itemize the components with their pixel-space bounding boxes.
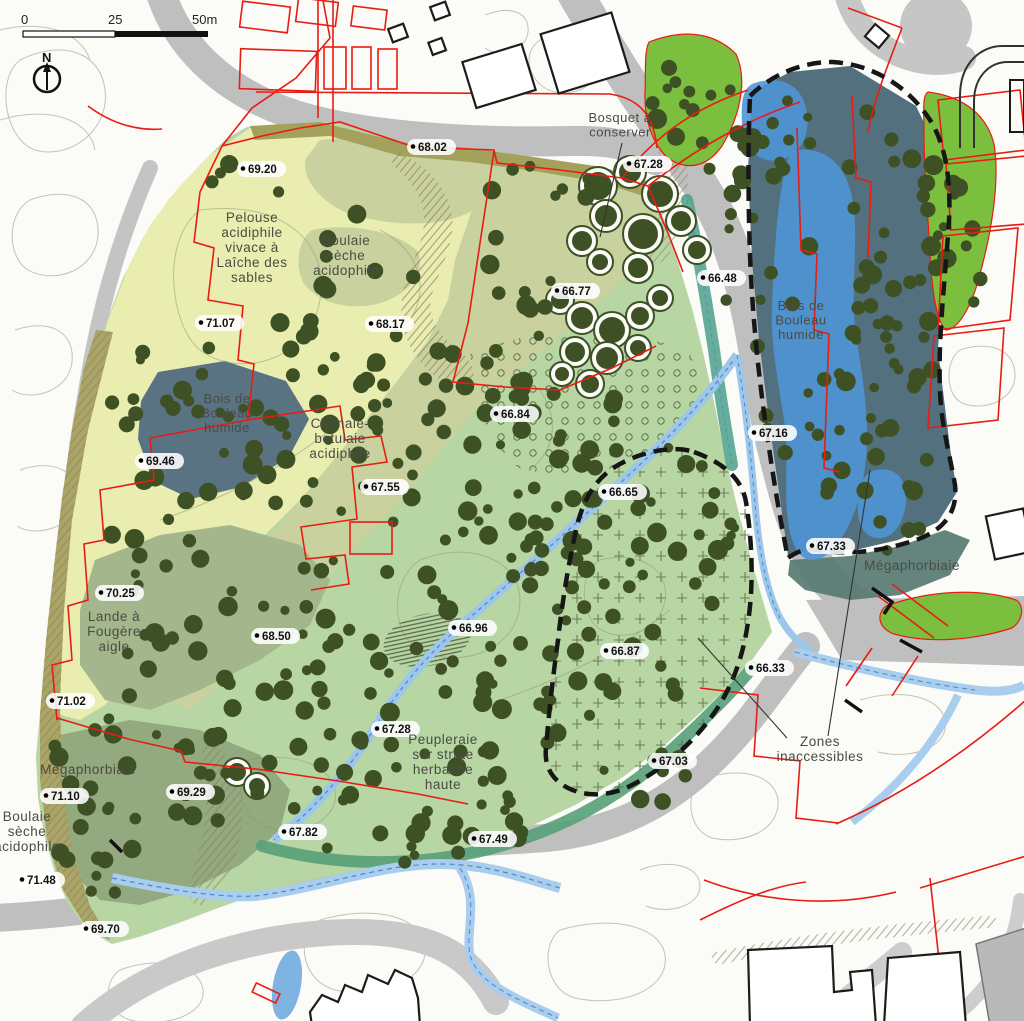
tree-dot bbox=[481, 741, 499, 759]
tree-dot bbox=[152, 730, 161, 739]
tree-dot bbox=[694, 529, 705, 540]
tree-dot bbox=[912, 522, 926, 536]
tree-dot bbox=[313, 276, 333, 296]
preserved-tree bbox=[591, 342, 623, 374]
tree-dot bbox=[109, 886, 121, 898]
tree-dot bbox=[869, 383, 879, 393]
tree-dot bbox=[183, 396, 194, 407]
tree-dot bbox=[427, 585, 441, 599]
tree-dot bbox=[282, 431, 291, 440]
tree-dot bbox=[439, 685, 453, 699]
elevation-value: 68.02 bbox=[418, 142, 447, 154]
tree-dot bbox=[380, 565, 394, 579]
tree-dot bbox=[365, 770, 382, 787]
elevation-label: 68.50 bbox=[251, 628, 300, 644]
tree-dot bbox=[262, 755, 278, 771]
tree-dot bbox=[483, 504, 493, 514]
tree-dot bbox=[296, 701, 314, 719]
tree-dot bbox=[136, 355, 145, 364]
tree-dot bbox=[439, 379, 453, 393]
tree-dot bbox=[238, 491, 248, 501]
tree-dot bbox=[356, 374, 369, 387]
map-canvas: 69.2068.0267.2866.7766.4871.0768.1766.84… bbox=[0, 0, 1024, 1021]
elevation-label: 69.29 bbox=[166, 784, 215, 800]
tree-dot bbox=[131, 569, 140, 578]
elevation-label: 67.55 bbox=[360, 479, 409, 495]
tree-dot bbox=[670, 76, 682, 88]
tree-dot bbox=[724, 518, 736, 530]
tree-dot bbox=[288, 802, 301, 815]
tree-dot bbox=[540, 517, 554, 531]
tree-dot bbox=[302, 665, 312, 675]
tree-dot bbox=[280, 606, 289, 615]
tree-dot bbox=[91, 851, 105, 865]
tree-dot bbox=[465, 479, 482, 496]
tree-dot bbox=[599, 766, 608, 775]
preserved-tree bbox=[576, 370, 604, 398]
tree-dot bbox=[363, 634, 380, 651]
tree-dot bbox=[430, 342, 447, 359]
tree-dot bbox=[308, 477, 319, 488]
tree-dot bbox=[557, 183, 568, 194]
tree-dot bbox=[382, 398, 392, 408]
elevation-value: 69.70 bbox=[91, 924, 120, 936]
tree-dot bbox=[567, 643, 584, 660]
tree-dot bbox=[853, 277, 870, 294]
tree-dot bbox=[256, 683, 274, 701]
elevation-value: 71.07 bbox=[206, 318, 235, 330]
tree-dot bbox=[166, 631, 179, 644]
tree-dot bbox=[127, 393, 139, 405]
elevation-label: 67.49 bbox=[468, 831, 517, 847]
tree-dot bbox=[608, 416, 620, 428]
tree-dot bbox=[102, 804, 114, 816]
tree-dot bbox=[565, 490, 582, 507]
tree-dot bbox=[502, 790, 513, 801]
tree-dot bbox=[419, 372, 432, 385]
tree-dot bbox=[314, 757, 329, 772]
tree-dot bbox=[103, 526, 121, 544]
tree-dot bbox=[874, 251, 887, 264]
tree-dot bbox=[492, 699, 512, 719]
tree-dot bbox=[282, 341, 299, 358]
tree-dot bbox=[194, 766, 208, 780]
tree-dot bbox=[119, 416, 135, 432]
tree-dot bbox=[923, 155, 943, 175]
tree-dot bbox=[702, 502, 719, 519]
tree-dot bbox=[476, 671, 494, 689]
tree-dot bbox=[300, 600, 314, 614]
tree-dot bbox=[384, 737, 400, 753]
preserved-tree bbox=[587, 249, 613, 275]
tree-dot bbox=[479, 526, 498, 545]
tree-dot bbox=[519, 286, 531, 298]
tree-dot bbox=[211, 813, 225, 827]
north-label: N bbox=[42, 50, 51, 65]
elevation-label: 66.48 bbox=[697, 270, 746, 286]
tree-dot bbox=[130, 813, 142, 825]
tree-dot bbox=[882, 419, 900, 437]
elevation-value: 66.33 bbox=[756, 663, 785, 675]
tree-dot bbox=[496, 440, 505, 449]
tree-dot bbox=[805, 422, 815, 432]
tree-dot bbox=[512, 420, 531, 439]
elevation-label: 67.16 bbox=[748, 425, 797, 441]
elevation-label: 71.02 bbox=[46, 693, 95, 709]
tree-dot bbox=[483, 181, 501, 199]
tree-dot bbox=[866, 413, 876, 423]
preserved-tree bbox=[683, 236, 711, 264]
tree-dot bbox=[324, 728, 337, 741]
tree-dot bbox=[440, 535, 451, 546]
tree-dot bbox=[509, 512, 527, 530]
tree-dot bbox=[920, 453, 934, 467]
vegetation-map: 69.2068.0267.2866.7766.4871.0768.1766.84… bbox=[0, 0, 1024, 1021]
tree-dot bbox=[398, 856, 411, 869]
tree-dot bbox=[183, 806, 202, 825]
elevation-label: 70.25 bbox=[95, 585, 144, 601]
elevation-value: 66.65 bbox=[609, 487, 638, 499]
tree-dot bbox=[894, 365, 904, 375]
tree-dot bbox=[145, 623, 165, 643]
elevation-label: 69.70 bbox=[80, 921, 129, 937]
elevation-label: 68.17 bbox=[365, 316, 414, 332]
tree-dot bbox=[191, 550, 209, 568]
tree-dot bbox=[919, 312, 938, 331]
tree-dot bbox=[706, 90, 717, 101]
tree-dot bbox=[380, 703, 400, 723]
tree-dot bbox=[258, 601, 269, 612]
tree-dot bbox=[884, 343, 894, 353]
elevation-value: 68.17 bbox=[376, 319, 405, 331]
elevation-value: 71.10 bbox=[51, 791, 80, 803]
tree-dot bbox=[183, 534, 196, 547]
preserved-tree bbox=[666, 206, 696, 236]
tree-dot bbox=[851, 301, 865, 315]
tree-dot bbox=[528, 482, 541, 495]
tree-dot bbox=[273, 186, 284, 197]
elevation-label: 66.84 bbox=[490, 406, 539, 422]
elevation-value: 69.29 bbox=[177, 787, 206, 799]
tree-dot bbox=[907, 379, 921, 393]
tree-dot bbox=[364, 687, 377, 700]
tree-dot bbox=[329, 556, 338, 565]
tree-dot bbox=[458, 527, 469, 538]
tree-dot bbox=[485, 388, 501, 404]
preserved-tree bbox=[623, 214, 663, 254]
zone-label-chenaie-betulaie: Chênaie-betulaieacidiphile bbox=[309, 416, 370, 461]
tree-dot bbox=[271, 313, 290, 332]
scale-tick-50: 50m bbox=[192, 12, 217, 27]
tree-dot bbox=[317, 697, 330, 710]
tree-dot bbox=[817, 372, 832, 387]
tree-dot bbox=[210, 727, 228, 745]
tree-dot bbox=[534, 561, 549, 576]
elevation-label: 66.33 bbox=[745, 660, 794, 676]
tree-dot bbox=[755, 295, 765, 305]
tree-dot bbox=[803, 388, 813, 398]
tree-dot bbox=[920, 202, 935, 217]
tree-dot bbox=[631, 790, 649, 808]
tree-dot bbox=[513, 489, 522, 498]
tree-dot bbox=[655, 660, 666, 671]
elevation-value: 66.77 bbox=[562, 286, 591, 298]
tree-dot bbox=[848, 202, 861, 215]
tree-dot bbox=[159, 559, 172, 572]
tree-dot bbox=[517, 383, 531, 397]
tree-dot bbox=[605, 390, 623, 408]
tree-dot bbox=[218, 597, 238, 617]
tree-dot bbox=[312, 786, 322, 796]
tree-dot bbox=[917, 189, 930, 202]
elevation-label: 67.82 bbox=[278, 824, 327, 840]
tree-dot bbox=[268, 496, 283, 511]
tree-dot bbox=[437, 425, 452, 440]
elevation-value: 67.49 bbox=[479, 834, 508, 846]
tree-dot bbox=[704, 596, 719, 611]
tree-dot bbox=[506, 553, 516, 563]
tree-dot bbox=[522, 577, 538, 593]
tree-dot bbox=[683, 86, 695, 98]
tree-dot bbox=[551, 501, 563, 513]
tree-dot bbox=[215, 168, 226, 179]
tree-dot bbox=[274, 680, 294, 700]
tree-dot bbox=[447, 655, 459, 667]
elevation-value: 67.33 bbox=[817, 541, 846, 553]
elevation-value: 66.48 bbox=[708, 273, 737, 285]
tree-dot bbox=[845, 325, 861, 341]
tree-dot bbox=[219, 448, 229, 458]
zone-label-megaphorbiaie-est: Mégaphorbiaie bbox=[864, 558, 960, 573]
tree-dot bbox=[804, 137, 816, 149]
tree-dot bbox=[637, 570, 648, 581]
tree-dot bbox=[370, 652, 388, 670]
tree-dot bbox=[689, 577, 702, 590]
tree-dot bbox=[456, 377, 475, 396]
tree-dot bbox=[324, 612, 335, 623]
tree-dot bbox=[199, 483, 217, 501]
tree-dot bbox=[623, 580, 636, 593]
tree-dot bbox=[250, 786, 264, 800]
tree-dot bbox=[888, 156, 900, 168]
tree-dot bbox=[704, 163, 716, 175]
elevation-value: 71.48 bbox=[27, 875, 56, 887]
tree-dot bbox=[568, 672, 587, 691]
tree-dot bbox=[310, 659, 326, 675]
tree-dot bbox=[485, 641, 496, 652]
tree-dot bbox=[86, 886, 97, 897]
tree-dot bbox=[391, 762, 402, 773]
elevation-value: 66.84 bbox=[501, 409, 530, 421]
elevation-label: 66.65 bbox=[598, 484, 647, 500]
tree-dot bbox=[776, 161, 791, 176]
tree-dot bbox=[336, 506, 346, 516]
tree-dot bbox=[860, 432, 873, 445]
tree-dot bbox=[721, 294, 732, 305]
tree-dot bbox=[880, 331, 892, 343]
zone-label-bois-bouleau-humide-est: Bois deBouleauhumide bbox=[775, 298, 826, 342]
tree-dot bbox=[879, 227, 890, 238]
tree-dot bbox=[834, 368, 845, 379]
tree-dot bbox=[341, 786, 359, 804]
tree-dot bbox=[125, 529, 145, 549]
tree-dot bbox=[918, 332, 929, 343]
tree-dot bbox=[548, 724, 566, 742]
elevation-label: 71.48 bbox=[16, 872, 65, 888]
tree-dot bbox=[968, 296, 979, 307]
tree-dot bbox=[466, 440, 480, 454]
elevation-value: 70.25 bbox=[106, 588, 135, 600]
elevation-label: 69.20 bbox=[237, 161, 286, 177]
tree-dot bbox=[577, 189, 594, 206]
tree-dot bbox=[473, 693, 492, 712]
tree-dot bbox=[410, 642, 424, 656]
tree-dot bbox=[582, 174, 593, 185]
tree-dot bbox=[314, 563, 330, 579]
tree-dot bbox=[367, 353, 386, 372]
tree-dot bbox=[812, 429, 824, 441]
elevation-label: 71.10 bbox=[40, 788, 89, 804]
tree-dot bbox=[961, 240, 972, 251]
tree-dot bbox=[289, 738, 307, 756]
tree-dot bbox=[474, 516, 483, 525]
tree-dot bbox=[873, 515, 886, 528]
tree-dot bbox=[351, 731, 368, 748]
tree-dot bbox=[577, 600, 591, 614]
elevation-value: 69.20 bbox=[248, 164, 277, 176]
tree-dot bbox=[489, 344, 503, 358]
tree-dot bbox=[105, 395, 119, 409]
tree-dot bbox=[280, 668, 292, 680]
tree-dot bbox=[392, 458, 403, 469]
elevation-label: 69.46 bbox=[135, 453, 184, 469]
elevation-value: 67.03 bbox=[659, 756, 688, 768]
tree-dot bbox=[918, 175, 935, 192]
tree-dot bbox=[778, 445, 793, 460]
elevation-label: 66.87 bbox=[600, 643, 649, 659]
tree-dot bbox=[595, 673, 613, 691]
tree-dot bbox=[597, 515, 612, 530]
tree-dot bbox=[330, 352, 340, 362]
zone-label-megaphorbiaie-sud-ouest: Mégaphorbiaie bbox=[40, 762, 136, 777]
tree-dot bbox=[783, 134, 794, 145]
tree-dot bbox=[724, 224, 733, 233]
tree-dot bbox=[631, 537, 649, 555]
tree-dot bbox=[513, 636, 528, 651]
tree-dot bbox=[822, 451, 832, 461]
tree-dot bbox=[245, 440, 263, 458]
tree-dot bbox=[581, 627, 596, 642]
tree-dot bbox=[123, 840, 141, 858]
tree-dot bbox=[545, 276, 555, 286]
elevation-value: 69.46 bbox=[146, 456, 175, 468]
tree-dot bbox=[803, 113, 812, 122]
preserved-tree bbox=[642, 176, 678, 212]
tree-dot bbox=[856, 482, 873, 499]
tree-dot bbox=[529, 530, 544, 545]
preserved-tree bbox=[623, 253, 653, 283]
tree-dot bbox=[720, 537, 734, 551]
preserved-tree bbox=[590, 200, 622, 232]
tree-dot bbox=[447, 815, 463, 831]
tree-dot bbox=[160, 395, 173, 408]
tree-dot bbox=[348, 205, 367, 224]
tree-dot bbox=[140, 660, 157, 677]
tree-dot bbox=[973, 272, 987, 286]
tree-dot bbox=[243, 455, 263, 475]
tree-dot bbox=[318, 364, 329, 375]
tree-dot bbox=[679, 99, 690, 110]
elevation-label: 66.96 bbox=[448, 620, 497, 636]
tree-dot bbox=[451, 846, 465, 860]
tree-dot bbox=[377, 379, 390, 392]
tree-dot bbox=[902, 149, 921, 168]
tree-dot bbox=[666, 678, 680, 692]
tree-dot bbox=[163, 514, 174, 525]
tree-dot bbox=[820, 486, 834, 500]
tree-dot bbox=[609, 443, 624, 458]
tree-dot bbox=[59, 851, 76, 868]
tree-dot bbox=[867, 448, 885, 466]
tree-dot bbox=[834, 425, 845, 436]
tree-dot bbox=[322, 640, 335, 653]
tree-dot bbox=[410, 850, 419, 859]
tree-dot bbox=[418, 566, 437, 585]
zone-label-bois-bouleau-humide-ouest: Bois deBouleauhumide bbox=[201, 391, 252, 435]
tree-dot bbox=[647, 523, 667, 543]
tree-dot bbox=[863, 298, 878, 313]
elevation-value: 68.50 bbox=[262, 631, 291, 643]
tree-dot bbox=[679, 769, 692, 782]
tree-dot bbox=[477, 799, 487, 809]
tree-dot bbox=[223, 677, 236, 690]
tree-dot bbox=[220, 767, 232, 779]
tree-dot bbox=[584, 710, 595, 721]
tree-dot bbox=[903, 275, 917, 289]
elevation-label: 67.33 bbox=[806, 538, 855, 554]
tree-dot bbox=[276, 450, 295, 469]
tree-dot bbox=[891, 320, 902, 331]
tree-dot bbox=[122, 688, 137, 703]
tree-dot bbox=[534, 331, 544, 341]
elevation-value: 66.87 bbox=[611, 646, 640, 658]
tree-dot bbox=[132, 548, 148, 564]
tree-dot bbox=[480, 356, 493, 369]
tree-dot bbox=[177, 738, 194, 755]
tree-dot bbox=[407, 470, 418, 481]
tree-dot bbox=[522, 300, 539, 317]
tree-dot bbox=[708, 487, 720, 499]
tree-dot bbox=[684, 457, 694, 467]
tree-dot bbox=[605, 609, 620, 624]
tree-dot bbox=[196, 368, 209, 381]
tree-dot bbox=[661, 60, 677, 76]
tree-dot bbox=[311, 681, 327, 697]
tree-dot bbox=[603, 689, 612, 698]
tree-dot bbox=[286, 368, 300, 382]
tree-dot bbox=[625, 558, 634, 567]
elevation-value: 67.16 bbox=[759, 428, 788, 440]
tree-dot bbox=[644, 624, 661, 641]
tree-dot bbox=[406, 444, 422, 460]
elevation-label: 67.03 bbox=[648, 753, 697, 769]
tree-dot bbox=[506, 569, 520, 583]
tree-dot bbox=[488, 766, 507, 785]
tree-dot bbox=[725, 208, 737, 220]
tree-dot bbox=[372, 825, 388, 841]
tree-dot bbox=[372, 425, 383, 436]
tree-dot bbox=[766, 117, 778, 129]
